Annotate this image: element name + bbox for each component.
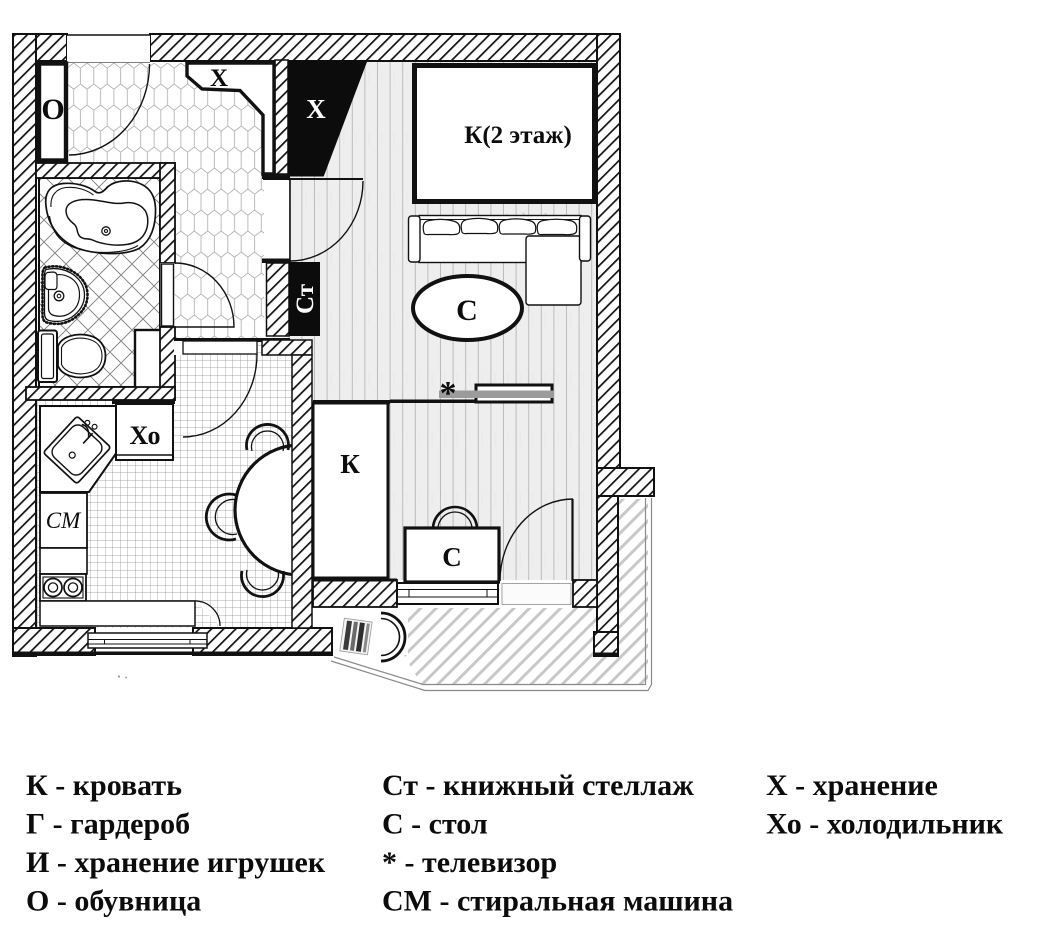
svg-text:К: К <box>340 449 360 479</box>
svg-text:Х: Х <box>210 65 228 92</box>
svg-text:Ст - книжный стеллаж: Ст - книжный стеллаж <box>382 769 694 802</box>
svg-text:К(2 этаж): К(2 этаж) <box>464 122 572 149</box>
svg-text:О: О <box>41 93 64 126</box>
svg-text:С: С <box>442 542 462 572</box>
svg-text:И - хранение игрушек: И - хранение игрушек <box>26 846 326 879</box>
svg-text:Х: Х <box>306 94 326 124</box>
svg-text:СМ: СМ <box>46 508 82 533</box>
svg-text:О - обувница: О - обувница <box>26 885 201 918</box>
svg-text:Г - гардероб: Г - гардероб <box>26 808 190 841</box>
svg-text:Хо: Хо <box>130 421 161 450</box>
svg-text:К - кровать: К - кровать <box>26 769 182 802</box>
svg-text:С: С <box>456 294 478 327</box>
svg-text:Х - хранение: Х - хранение <box>766 769 938 802</box>
svg-text:*: * <box>440 375 457 412</box>
svg-text:Хо - холодильник: Хо - холодильник <box>766 808 1004 841</box>
svg-text:Ст: Ст <box>292 284 319 314</box>
svg-text:С - стол: С - стол <box>382 808 488 841</box>
svg-text:* - телевизор: * - телевизор <box>382 846 557 879</box>
svg-text:СМ - стиральная машина: СМ - стиральная машина <box>382 885 733 918</box>
